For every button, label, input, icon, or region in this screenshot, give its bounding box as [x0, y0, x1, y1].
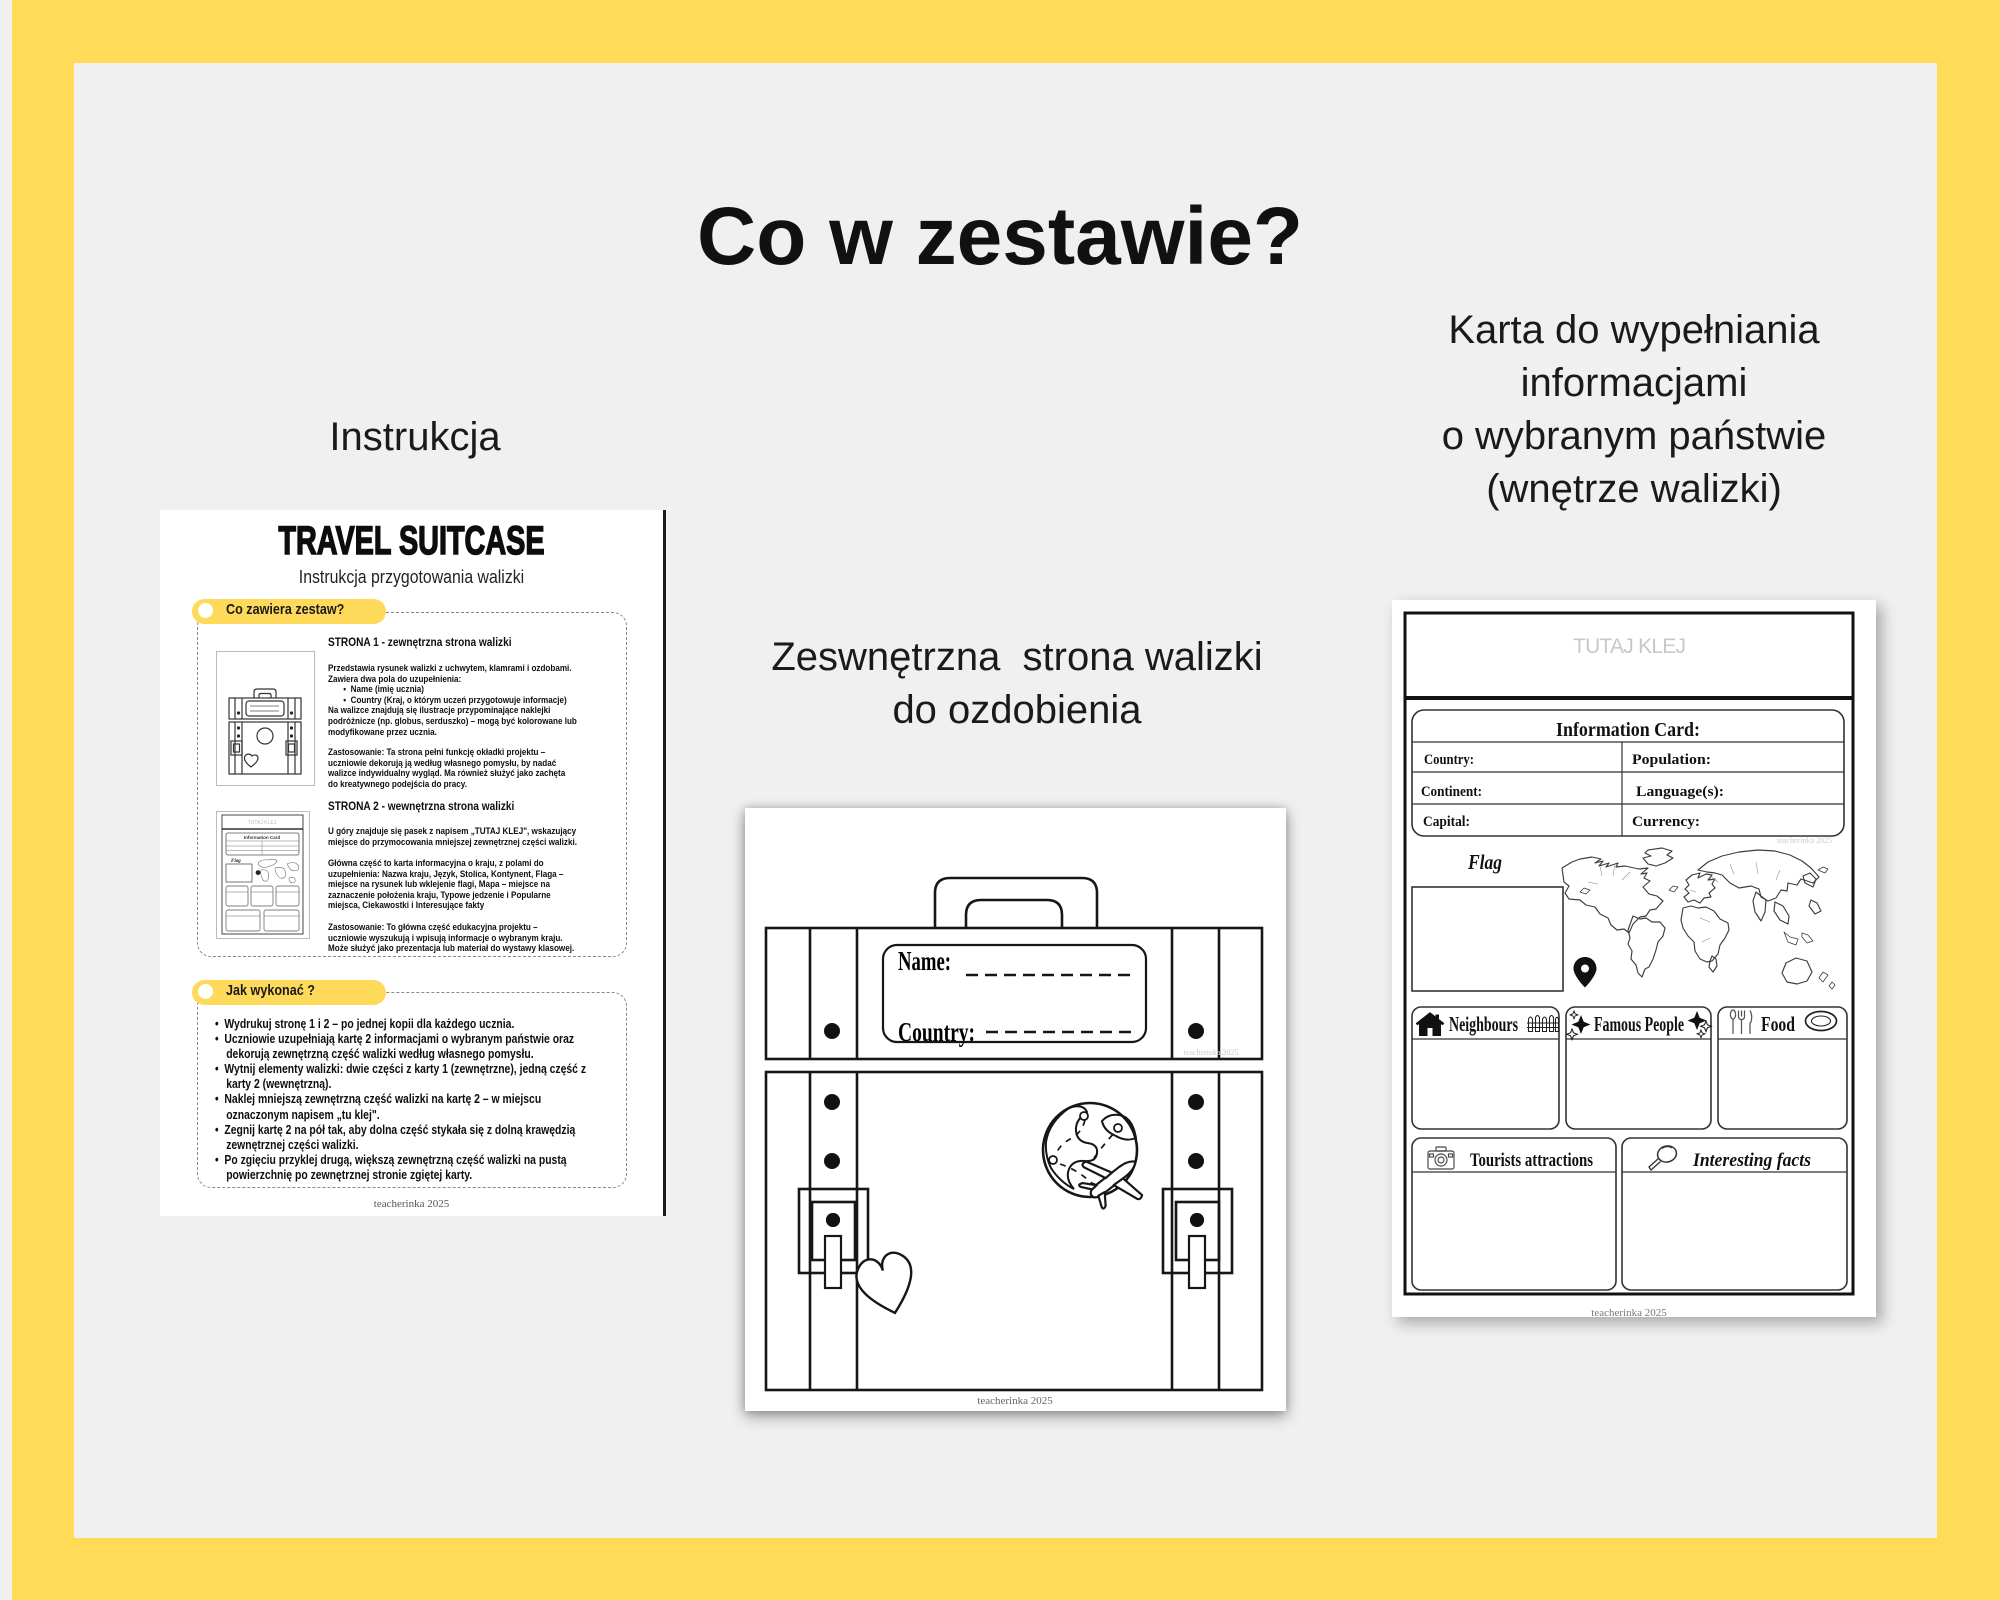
svg-text:Famous People: Famous People — [1594, 1012, 1684, 1036]
svg-text:Flag: Flag — [1467, 850, 1502, 874]
svg-text:teacherinka 2025: teacherinka 2025 — [1184, 1048, 1239, 1057]
svg-text:Neighbours: Neighbours — [1449, 1012, 1518, 1036]
svg-text:teacherinka 2025: teacherinka 2025 — [977, 1395, 1053, 1407]
svg-text:Name:: Name: — [898, 946, 951, 976]
svg-text:teacherinka 2025: teacherinka 2025 — [1591, 1307, 1667, 1317]
svg-text:Currency:: Currency: — [1632, 814, 1700, 830]
svg-text:Interesting facts: Interesting facts — [1692, 1150, 1811, 1171]
svg-text:Food: Food — [1761, 1012, 1795, 1036]
svg-text:Capital:: Capital: — [1423, 814, 1470, 830]
svg-text:teacherinka 2025: teacherinka 2025 — [1777, 836, 1832, 845]
svg-text:TUTAJ KLEJ: TUTAJ KLEJ — [248, 820, 277, 826]
svg-text:Information Card: Information Card — [244, 835, 281, 840]
svg-text:Country:: Country: — [1424, 752, 1474, 768]
svg-text:Country:: Country: — [898, 1017, 975, 1047]
svg-text:Information Card:: Information Card: — [1556, 719, 1700, 741]
svg-text:Language(s):: Language(s): — [1636, 784, 1724, 800]
svg-text:Continent:: Continent: — [1421, 784, 1482, 800]
svg-text:Flag: Flag — [231, 859, 241, 864]
svg-text:TUTAJ KLEJ: TUTAJ KLEJ — [1573, 635, 1686, 658]
svg-text:Population:: Population: — [1632, 752, 1711, 768]
svg-text:Tourists attractions: Tourists attractions — [1470, 1150, 1593, 1171]
